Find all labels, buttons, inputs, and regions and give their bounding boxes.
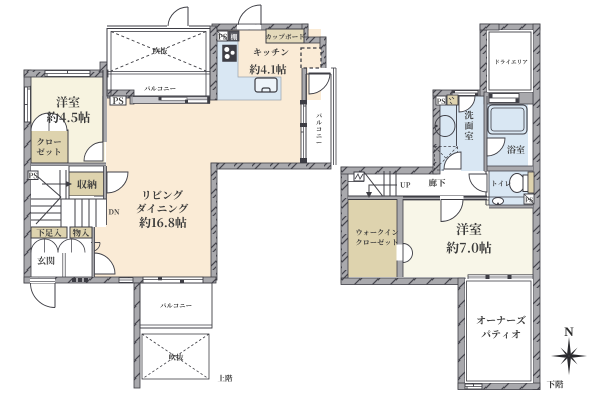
svg-text:N: N	[564, 324, 574, 339]
